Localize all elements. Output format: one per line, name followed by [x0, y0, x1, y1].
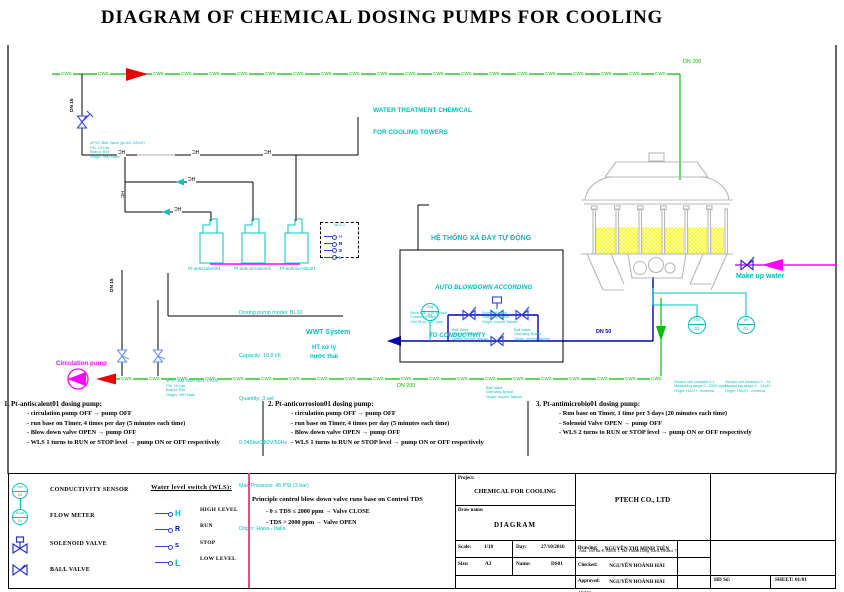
dosing-arrow-icon	[176, 179, 184, 186]
pipe-label: CWS	[292, 71, 305, 76]
name-label: Name:	[516, 562, 531, 568]
spec-line: Capacity: 10.8 l/h	[239, 353, 309, 360]
water-treatment-callout: WATER TREATMENT CHEMICAL FOR COOLING TOW…	[366, 94, 472, 149]
drain-arrow-down-icon	[656, 326, 666, 341]
pipe-size-label: DN 15	[70, 98, 76, 112]
strip-border-top	[8, 473, 836, 474]
day-value: 27/10/2016	[541, 545, 565, 551]
note-title: 3. Pt-antimicrobio01 dosing pump:	[536, 400, 836, 409]
sheet-number: SHEET: 01/01	[775, 578, 807, 584]
wls-legend-row: L	[155, 554, 181, 561]
wls-legend-row: S	[155, 538, 179, 545]
note-title: 1. Pt-antiscalent01 dosing pump:	[4, 400, 262, 409]
legend-flowmeter-icon: FLOW 01	[12, 509, 28, 525]
checked-label: Checked:	[578, 563, 597, 569]
pipe-label: CWS	[460, 71, 473, 76]
wwt-system-label: WWT System	[306, 329, 350, 337]
pipe-label: CWS	[600, 71, 613, 76]
note-item: - circulation pump OFF → pump OFF	[291, 409, 526, 419]
drawing-label: Drawing:	[578, 546, 597, 552]
checked-name: NGUYỄN HOÀNH HẢI	[598, 563, 676, 569]
pipe-label: CWS	[572, 71, 585, 76]
tb-hline	[455, 505, 575, 506]
pipe-label: CWS	[516, 71, 529, 76]
makeup-water-label: Make up water	[736, 273, 784, 281]
dosing-arrow-icon	[162, 209, 170, 216]
note-item: - WLS 1 turns to RUN or STOP level → pum…	[291, 438, 526, 448]
note-1: 1. Pt-antiscalent01 dosing pump: - circu…	[4, 400, 262, 447]
pipe-label: CWS	[624, 376, 637, 381]
pipe-label: CWS	[180, 71, 193, 76]
valve-annotation: Ball ValveGermany BrandOrigin: Import Ta…	[452, 291, 488, 378]
pipe-label: CWS	[628, 71, 641, 76]
ph-sensor-icon: pH 01	[737, 316, 755, 334]
pipe-label: CWS	[120, 376, 133, 381]
float-switch-icon	[324, 257, 333, 258]
cooling-tower	[581, 153, 733, 290]
strip-border-left	[8, 473, 9, 589]
note-item: - Blow down valve OPEN → pump OFF	[291, 428, 526, 438]
chemical-tanks	[200, 219, 308, 263]
pipe-label: CWS	[376, 71, 389, 76]
pipe-label: CWS	[432, 71, 445, 76]
callout-line: WATER TREATMENT CHEMICAL	[373, 107, 472, 114]
wls-legend-title: Water level switch (WLS):	[151, 484, 232, 491]
size-label: Size:	[458, 562, 469, 568]
pipe-label: CWS	[152, 71, 165, 76]
tb-vline	[710, 473, 711, 588]
callout-line: HỆ THỐNG XẢ ĐÁY TỰ ĐỘNG	[431, 233, 532, 245]
project-label: Project:	[458, 476, 474, 482]
pipe-label: CWS	[316, 376, 329, 381]
strip-border-bottom	[8, 588, 836, 589]
pipe-label: CWS	[208, 71, 221, 76]
day-label: Day:	[516, 545, 527, 551]
legend-label: FLOW METER	[50, 513, 95, 520]
strip-border-right	[835, 473, 836, 589]
tank-label: Pt-antimicrobio01	[280, 266, 316, 271]
chemical-line-label: HC	[173, 208, 182, 214]
pipe-label: CWS	[568, 376, 581, 381]
wls-legend-label: STOP	[200, 540, 215, 546]
pipe-size-label: DN 50	[596, 329, 611, 335]
legend-divider	[248, 473, 250, 588]
name-value: DS01	[551, 562, 563, 568]
note-item: - Solenoid Valve OPEN → pump OFF	[559, 419, 836, 429]
flow-arrow-right-icon	[126, 68, 148, 81]
pipe-label: CWS	[654, 71, 667, 76]
note-item: - WLS 2 turns to RUN or STOP level → pum…	[559, 428, 836, 438]
wwt-arrow-left-icon	[387, 336, 401, 346]
company-name: PTECH CO., LTD	[577, 496, 708, 504]
tank-label: Pt-antiscalent01	[188, 266, 221, 271]
pipe-label: CWS	[148, 376, 161, 381]
note-item: - run base on Timer, 4 times per day (5 …	[27, 419, 262, 429]
pipe-label: CWS	[400, 376, 413, 381]
pipe-label: CWS	[372, 376, 385, 381]
size-value: A3	[485, 562, 491, 568]
pipe-size-label: DN 200	[682, 60, 702, 66]
tb-vline	[770, 575, 771, 588]
pipe-label: CWS	[344, 376, 357, 381]
wwt-vn-label: nước thải	[310, 354, 338, 361]
sensor-annotation: Sens 02k TDS sensorControl by TDSOn/Off …	[410, 274, 447, 361]
wls-legend-label: HIGH LEVEL	[200, 507, 238, 513]
float-switch-icon	[155, 513, 169, 514]
note-item: - Blow down valve OPEN → pump OFF	[27, 428, 262, 438]
makeup-ball-valve	[741, 257, 754, 270]
legend-conductivity-icon: TDS 01	[12, 483, 28, 499]
chemical-line-label: HC	[187, 178, 196, 184]
note-item: - WLS 1 turns to RUN or STOP level → pum…	[27, 438, 262, 448]
approved-name: NGUYỄN HOÀNH HẢI	[598, 579, 676, 585]
note-3: 3. Pt-antimicrobio01 dosing pump: - Run …	[536, 400, 836, 438]
wls-legend-row: H	[155, 505, 181, 512]
pipe-label: CWS	[488, 71, 501, 76]
note-2: 2. Pt-anticorrosion01 dosing pump: - cir…	[268, 400, 526, 447]
drawname-label: Draw name:	[458, 508, 483, 514]
callout-line: FOR COOLING TOWERS	[373, 129, 448, 136]
pipe-label: CWS	[404, 71, 417, 76]
pipe-label: CWS	[320, 71, 333, 76]
float-switch-icon	[324, 236, 333, 237]
pipe-label: CWS	[236, 71, 249, 76]
drawing-name: NGUYỄN THỊ MINH TIÊN	[598, 546, 676, 552]
wls-switch-box: WLS 2 H R S L	[320, 222, 359, 258]
note-item: - Run base on Timer, 1 time per 3 days (…	[559, 409, 836, 419]
wls-legend-label: LOW LEVEL	[200, 556, 236, 562]
spec-line: Dosing pump model: BL10	[239, 310, 309, 317]
flow-arrow-left-icon	[96, 374, 116, 385]
wls-legend-label: RUN	[200, 523, 213, 529]
legend-icon-link	[20, 499, 21, 509]
wls-legend-row: R	[155, 521, 180, 528]
circulation-pump-label: Circulation pump	[56, 360, 107, 367]
legend-label: BALL VALVE	[50, 567, 90, 574]
pipe-size-label: DN 15	[110, 278, 116, 292]
legend-label: CONDUCTIVITY SENSOR	[50, 487, 129, 494]
approved-label: Approved:	[578, 579, 600, 585]
pipe-label: CWS	[264, 71, 277, 76]
tank-label: Pt-anticorrosion01	[234, 266, 271, 271]
pipe-label: CWS	[60, 71, 73, 76]
pipe-label: CWS	[544, 71, 557, 76]
wls-level-row: H	[321, 228, 358, 235]
dosing-injection-valve-2	[154, 350, 166, 362]
pipe-label: CWS	[596, 376, 609, 381]
hd-so-label: HD Số:	[714, 578, 730, 584]
circulation-pump-icon	[68, 369, 89, 389]
pipe-label: CWS	[97, 71, 110, 76]
pipe-label: CWS	[348, 71, 361, 76]
drawing-sheet: DIAGRAM OF CHEMICAL DOSING PUMPS FOR COO…	[0, 0, 844, 592]
scale-label: Scale:	[458, 545, 471, 551]
tds-sensor-icon: TDS 01	[688, 316, 706, 334]
principle-title: Principle control blow down valve runs b…	[252, 496, 423, 504]
float-switch-icon	[155, 562, 169, 563]
makeup-arrow-left-icon	[762, 259, 783, 271]
chemical-line-label: HC	[263, 151, 272, 157]
legend-label: SOLENOID VALVE	[50, 541, 107, 548]
legend-ball-valve-icon	[10, 563, 30, 577]
wwt-vn-label: HT xử lý	[312, 345, 336, 352]
drawname-value: DIAGRAM	[455, 521, 575, 529]
pipe-label: CWS	[650, 376, 663, 381]
legend-solenoid-valve-icon	[10, 536, 30, 554]
float-switch-icon	[155, 529, 169, 530]
float-switch-icon	[155, 546, 169, 547]
tb-vline	[575, 473, 576, 588]
project-name: CHEMICAL FOR COOLING	[455, 488, 575, 495]
dosing-injection-valve-1	[118, 350, 130, 362]
chemical-line-label: HC	[191, 151, 200, 157]
principle-item: - TDS > 2000 ppm → Valve OPEN	[266, 519, 357, 526]
scale-value: 1/10	[484, 545, 493, 551]
principle-item: - 0 ≤ TDS ≤ 2000 ppm → Valve CLOSE	[266, 508, 370, 515]
note-item: - run base on Timer, 4 times per day (5 …	[291, 419, 526, 429]
note-title: 2. Pt-anticorrosion01 dosing pump:	[268, 400, 526, 409]
valve-annotation: uPVC Ball Valve (φ=49, DN15)PN: 10 barBr…	[90, 104, 145, 197]
float-switch-icon	[324, 250, 333, 251]
note-item: - circulation pump OFF → pump OFF	[27, 409, 262, 419]
pipe-size-label: DN 200	[396, 384, 416, 390]
float-switch-icon	[324, 243, 333, 244]
